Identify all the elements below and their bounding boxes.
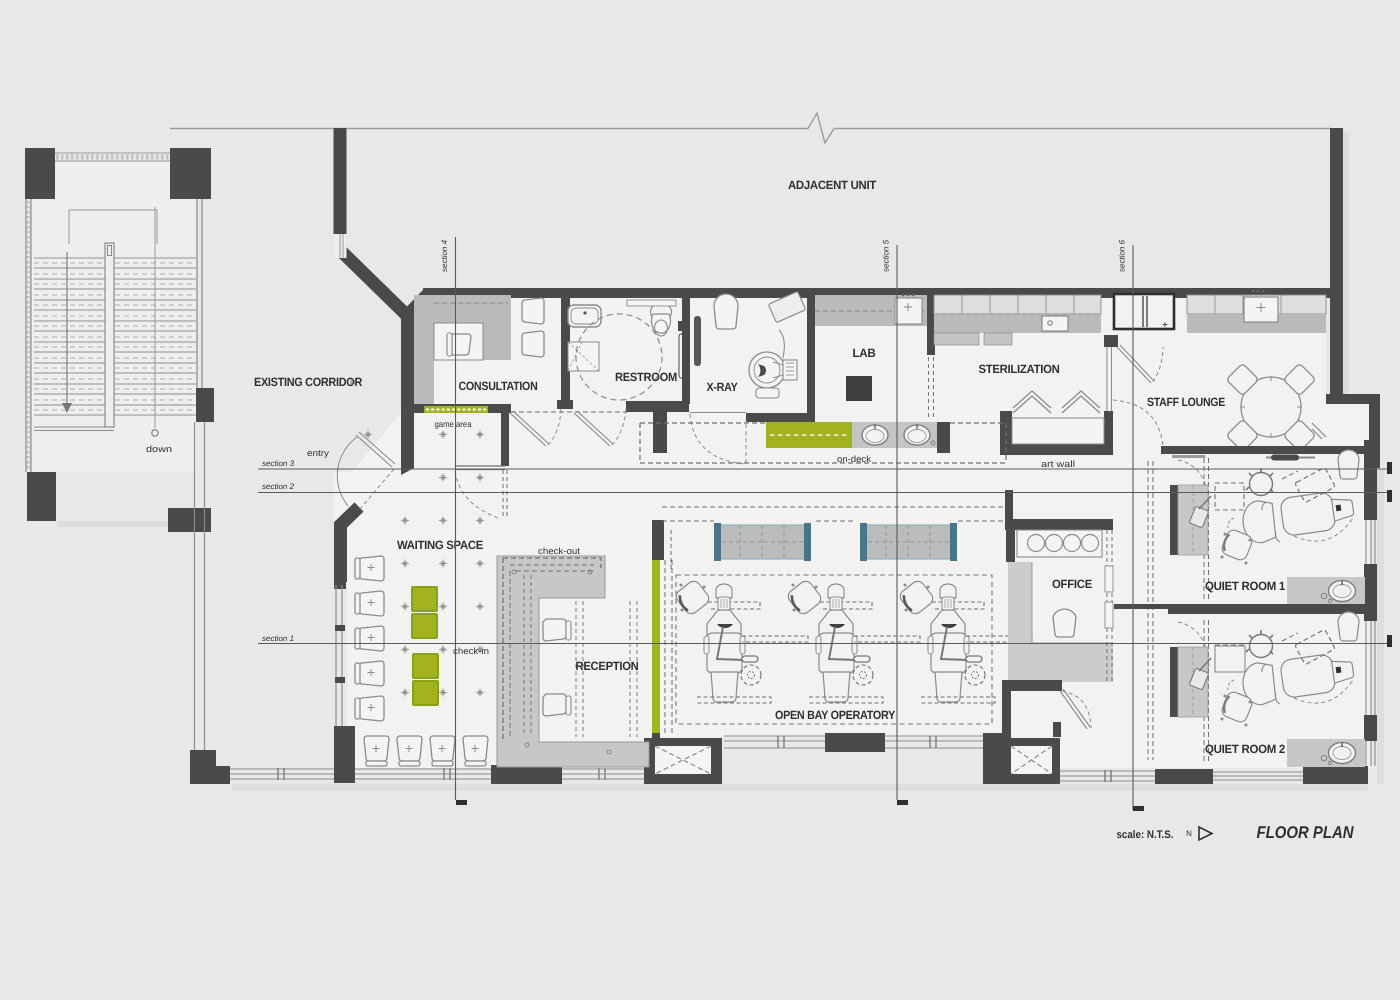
svg-text:FLOOR PLAN: FLOOR PLAN <box>1257 823 1355 842</box>
svg-text:LAB: LAB <box>853 346 877 360</box>
svg-text:section 6: section 6 <box>1118 239 1127 272</box>
svg-text:section 2: section 2 <box>262 482 295 491</box>
svg-text:art wall: art wall <box>1041 459 1075 469</box>
svg-text:section 5: section 5 <box>882 239 891 272</box>
svg-text:entry: entry <box>307 448 330 458</box>
svg-text:STAFF LOUNGE: STAFF LOUNGE <box>1147 395 1225 409</box>
svg-text:CONSULTATION: CONSULTATION <box>459 379 538 393</box>
svg-text:WAITING SPACE: WAITING SPACE <box>397 538 483 552</box>
svg-text:down: down <box>146 444 172 454</box>
svg-text:EXISTING CORRIDOR: EXISTING CORRIDOR <box>254 375 363 389</box>
svg-text:STERILIZATION: STERILIZATION <box>979 362 1060 376</box>
svg-text:QUIET ROOM 2: QUIET ROOM 2 <box>1205 742 1286 756</box>
svg-text:OPEN BAY OPERATORY: OPEN BAY OPERATORY <box>775 708 895 722</box>
svg-text:ADJACENT UNIT: ADJACENT UNIT <box>788 178 877 192</box>
svg-text:game area: game area <box>435 419 472 429</box>
svg-text:X-RAY: X-RAY <box>707 380 738 394</box>
svg-text:check-in: check-in <box>453 646 489 656</box>
svg-text:RESTROOM: RESTROOM <box>615 370 677 384</box>
svg-text:check-out: check-out <box>538 546 581 556</box>
svg-text:N: N <box>1186 829 1192 838</box>
svg-text:section 1: section 1 <box>262 634 294 643</box>
svg-text:QUIET ROOM 1: QUIET ROOM 1 <box>1205 579 1286 593</box>
svg-text:section 3: section 3 <box>262 459 295 468</box>
svg-text:RECEPTION: RECEPTION <box>576 659 639 673</box>
svg-text:scale: N.T.S.: scale: N.T.S. <box>1117 829 1174 841</box>
svg-text:section 4: section 4 <box>440 239 449 272</box>
svg-text:OFFICE: OFFICE <box>1052 577 1092 591</box>
